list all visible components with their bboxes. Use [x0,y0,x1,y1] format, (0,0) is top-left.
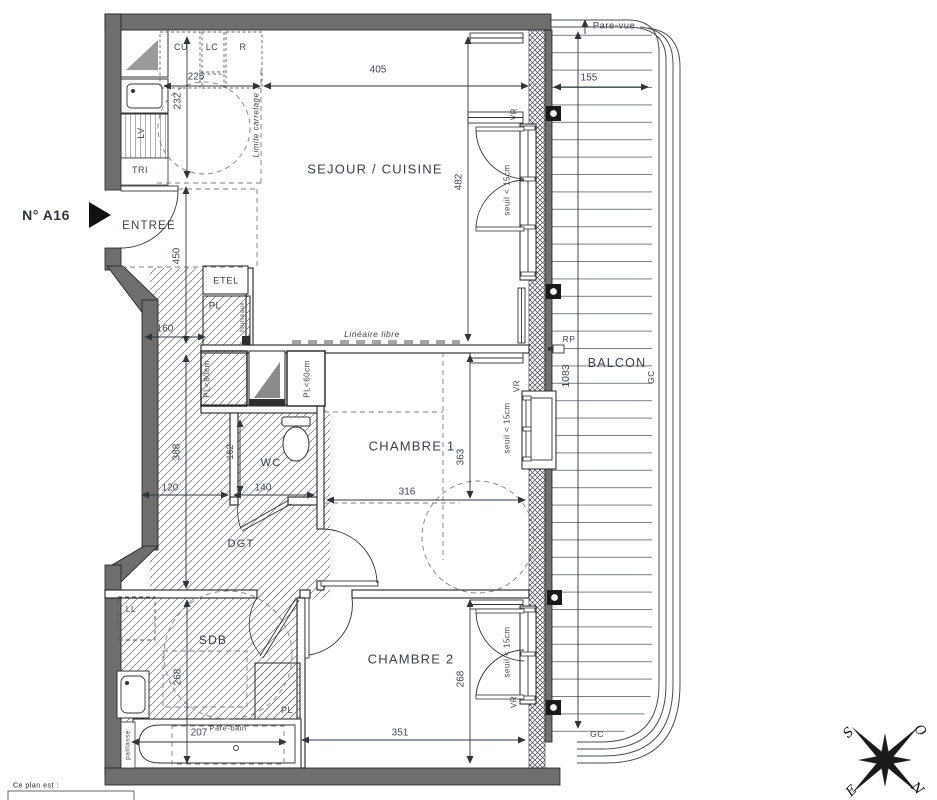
kitchen-r-label: R [240,42,247,52]
unit-pointer-icon [89,202,111,228]
closet-pl-ch2-label: PL [281,705,293,715]
room-label-sejour: SEJOUR / CUISINE [307,162,443,177]
dim-450: 450 [172,248,183,265]
seuil-label-chambre1: seuil < 15cm [503,402,512,453]
dim-482: 482 [454,174,465,191]
kitchen-cu-label: CU [174,42,188,52]
dim-1083: 1083 [560,364,572,387]
fourreaux-label: fourreaux [240,302,246,332]
paillasse-label: paillasse [125,730,132,760]
room-label-wc: WC [261,457,282,469]
pare-bain-label: Pare-bain [209,724,246,733]
kitchen-tri-label: TRI [132,165,148,175]
dim-268-chambre2: 268 [456,671,467,688]
unit-label: N° A16 [22,207,70,223]
legend-caption: Ce plan est : [13,783,59,790]
dim-162: 162 [225,444,235,459]
room-label-dgt: DGT [228,538,255,550]
compass-rose-icon [853,728,918,793]
dim-120: 120 [162,483,179,494]
room-label-entree: ENTREE [122,220,176,232]
kitchen-lc-label: LC [206,42,219,52]
ll-label: LL [126,604,136,614]
dim-351: 351 [392,728,409,739]
gc-bottom-label: GC [590,729,604,739]
lineaire-libre-label: Linéaire libre [344,329,400,339]
kitchen-lv-label: LV [136,127,146,138]
room-label-chambre1: CHAMBRE 1 [369,439,456,454]
room-label-balcon: BALCON [588,356,647,370]
room-label-sdb: SDB [199,633,227,647]
seuil-label-sejour: seuil < 15cm [503,164,512,215]
rp-label: RP [563,334,576,344]
closet-pl80-label: PL<80cm [203,360,212,398]
pl-duct-label: PL [209,301,222,312]
legend-box [8,791,134,800]
closet-pl60-label: PL<60cm [303,360,312,398]
vr-label-chambre2: VR [510,696,519,708]
pare-vue-label: Pare-vue [593,21,636,32]
room-label-chambre2: CHAMBRE 2 [368,652,455,667]
floor-plan-page: N° A16 SEJOUR / CUISINE ENTREE CHAMBRE 1… [0,0,937,800]
dim-405: 405 [370,65,387,76]
kitchen-fixtures [121,30,262,185]
dim-155: 155 [581,73,598,84]
limite-carrelage-label: Limite carrelage [252,93,261,158]
dim-160: 160 [157,324,174,335]
dim-140: 140 [255,483,272,494]
dim-388: 388 [172,444,183,461]
seuil-label-chambre2: seuil < 15cm [503,626,512,677]
dim-207: 207 [191,728,208,739]
dim-268-sdb: 268 [173,669,184,686]
dim-316: 316 [399,487,416,498]
etel-label: ETEL [213,276,239,287]
vr-label-sejour: VR [510,108,519,120]
vr-label-chambre1: VR [513,380,522,392]
window-chambre1 [522,391,556,469]
dim-232: 232 [173,93,184,110]
floor-plan-drawing [0,0,937,800]
gc-vertical-label: GC [646,370,656,384]
dim-225: 225 [188,72,205,83]
balcony-deck [551,20,680,763]
dim-363: 363 [456,449,467,466]
